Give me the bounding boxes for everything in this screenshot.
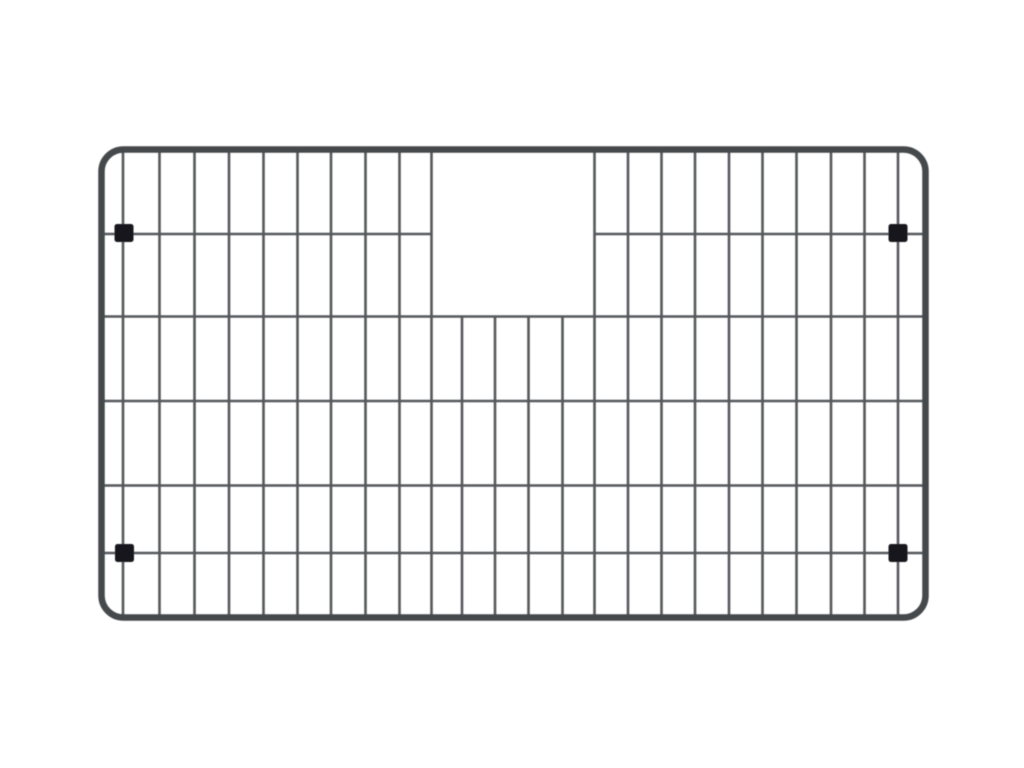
rubber-foot <box>115 544 134 562</box>
grid-frame <box>102 150 926 618</box>
rubber-foot <box>115 224 134 242</box>
product-photo <box>0 0 1024 768</box>
sink-grid-wires <box>101 149 926 619</box>
sink-grid-image <box>0 0 1024 768</box>
rubber-foot <box>889 544 908 562</box>
rubber-foot <box>889 224 908 242</box>
